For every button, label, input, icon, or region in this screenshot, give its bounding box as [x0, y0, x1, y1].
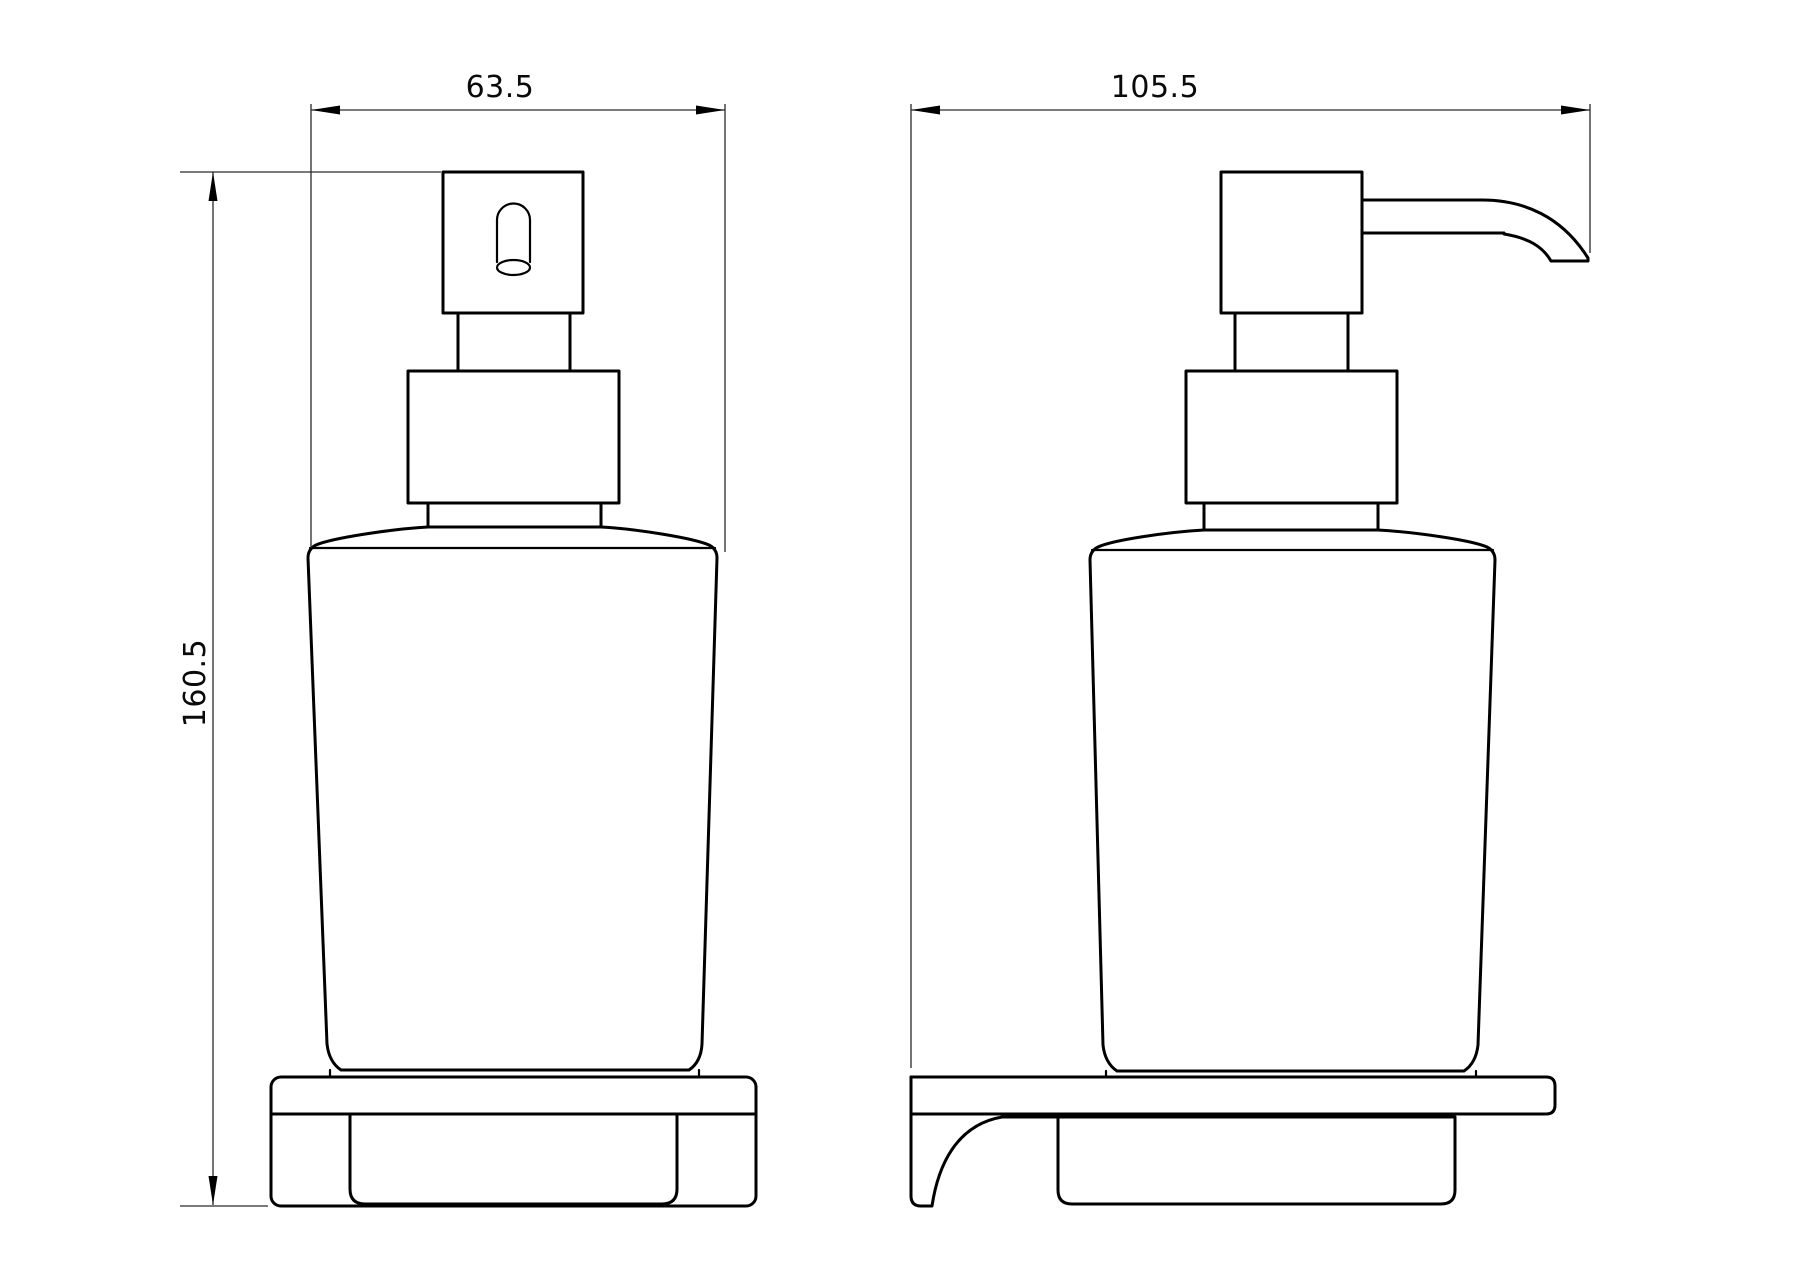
- front-view: [271, 172, 756, 1206]
- front-nozzle-opening: [497, 204, 530, 262]
- dimension-extension-lines: [911, 104, 1590, 1068]
- side-bracket-shelf: [911, 1077, 1555, 1114]
- dimension-side-depth: 105.5: [911, 70, 1590, 1068]
- side-bracket-arm: [911, 1077, 1058, 1206]
- side-pump-head: [1221, 172, 1362, 313]
- dimension-height: 160.5: [178, 172, 441, 1206]
- dimension-arrow-right: [696, 106, 725, 115]
- front-bottle-neck: [428, 503, 601, 526]
- dimension-arrow-bottom: [209, 1176, 218, 1205]
- dimension-arrow-left: [311, 106, 340, 115]
- side-bottle-neck: [1204, 503, 1378, 529]
- side-bottle-body: [1090, 530, 1495, 1071]
- front-pump-stem: [458, 313, 570, 371]
- dimension-arrow-right: [1561, 106, 1590, 115]
- side-pump-collar: [1186, 371, 1397, 503]
- dimension-value-side-depth: 105.5: [1111, 70, 1199, 105]
- front-glass-holder-ring: [350, 1114, 677, 1204]
- front-nozzle-opening-bottom: [497, 260, 530, 275]
- dimension-arrow-left: [911, 106, 940, 115]
- dimension-front-width: 63.5: [311, 70, 725, 552]
- front-pump-collar: [408, 371, 619, 503]
- front-pump-head: [443, 172, 583, 313]
- drawing-canvas: 63.5 105.5 160.5: [0, 0, 1800, 1272]
- dimension-arrow-top: [209, 172, 218, 201]
- front-bracket-shell: [271, 1077, 756, 1206]
- technical-drawing: 63.5 105.5 160.5: [0, 0, 1800, 1272]
- side-pump-stem: [1235, 313, 1348, 371]
- dimension-value-front-width: 63.5: [466, 70, 535, 105]
- dimension-value-height: 160.5: [178, 639, 213, 727]
- front-bottle-body: [308, 527, 717, 1070]
- side-view: [911, 172, 1588, 1206]
- side-glass-holder-ring: [1058, 1117, 1455, 1204]
- side-pump-spout: [1362, 200, 1588, 261]
